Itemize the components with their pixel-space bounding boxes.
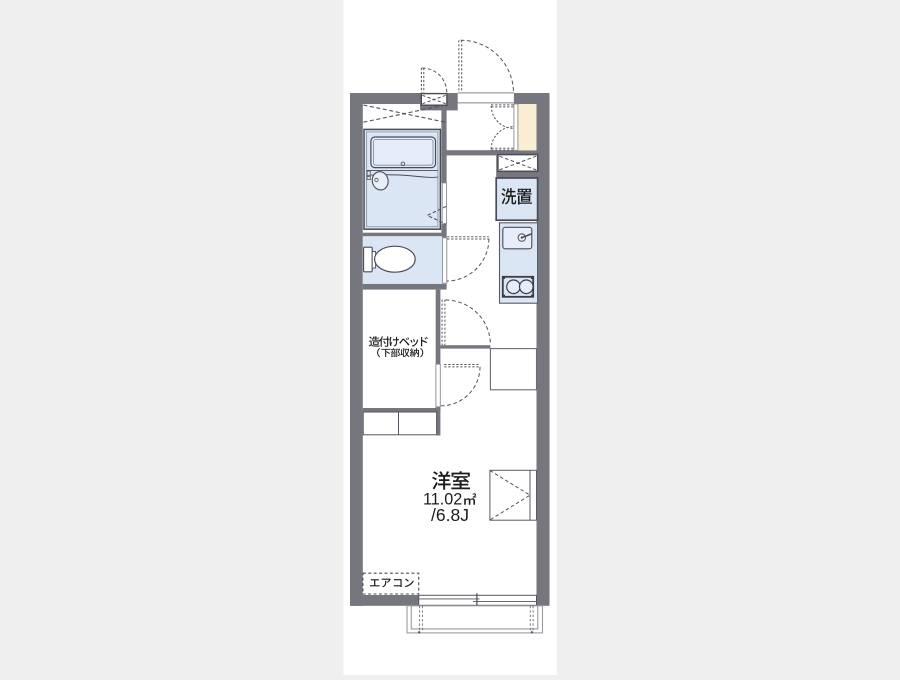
svg-text:/6.8J: /6.8J	[431, 505, 469, 525]
